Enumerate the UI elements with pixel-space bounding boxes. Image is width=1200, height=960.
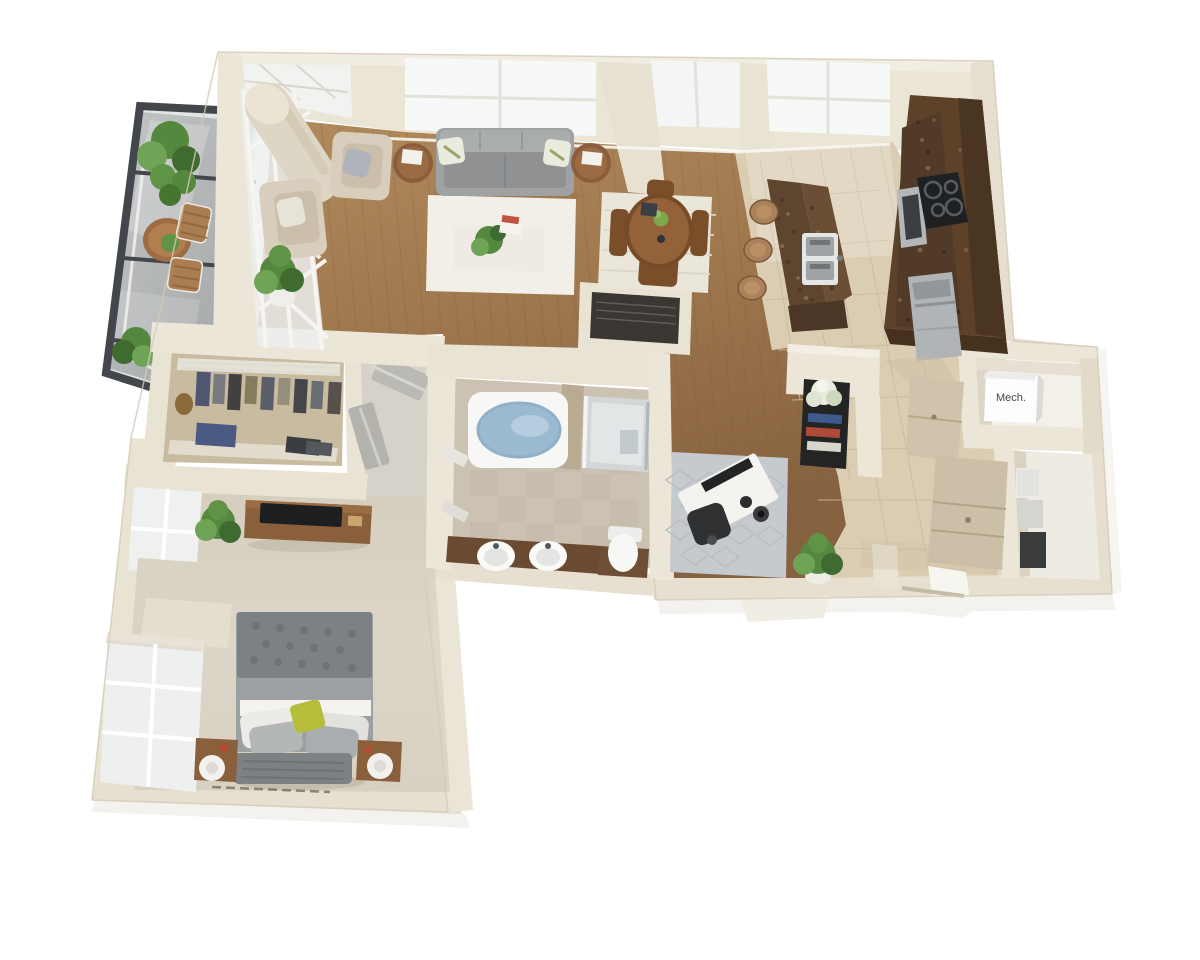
svg-text:Mech.: Mech. — [996, 392, 1026, 404]
